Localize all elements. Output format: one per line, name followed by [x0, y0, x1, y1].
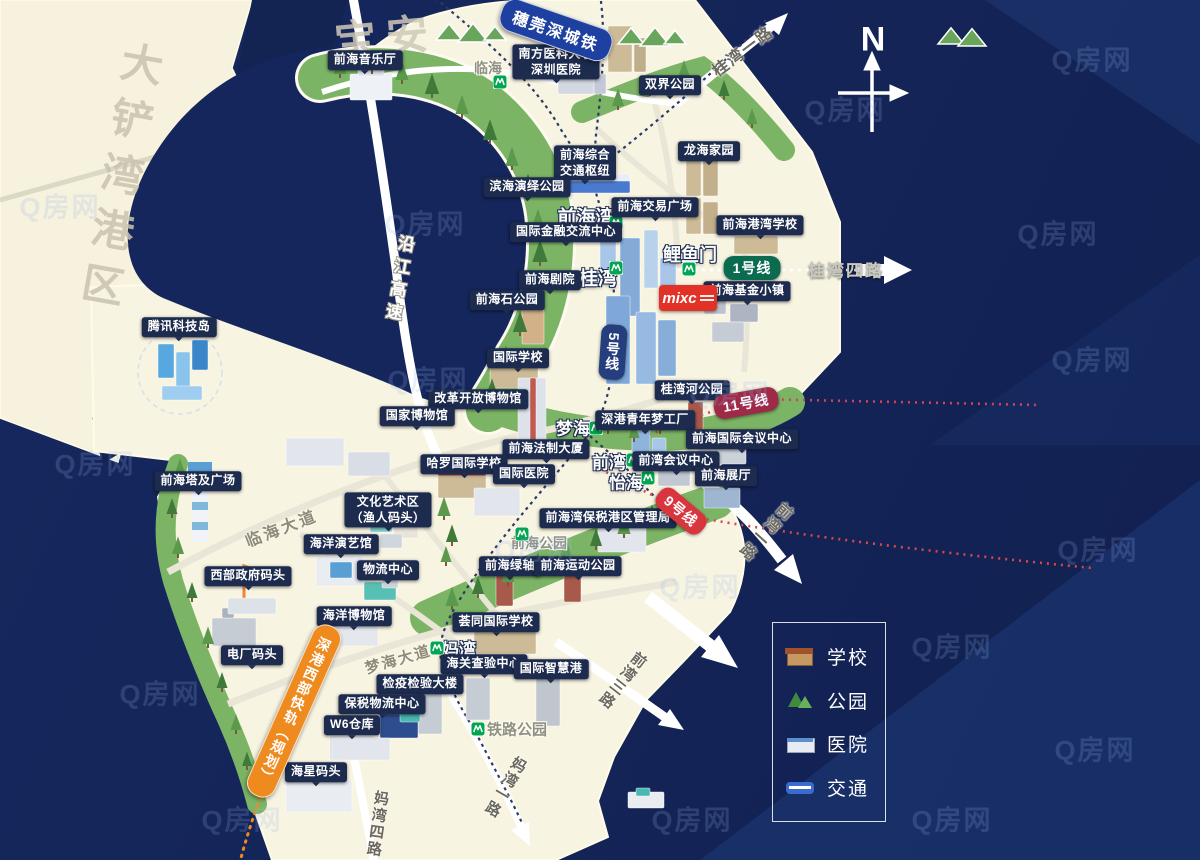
legend-park: 公园 [773, 687, 885, 714]
poi-w6-warehouse[interactable]: W6仓库 [324, 715, 380, 735]
poi-qianhai-exchange-plaza[interactable]: 前海交易广场 [611, 197, 698, 217]
site-watermark: Q房网 [1017, 213, 1098, 252]
site-watermark: Q房网 [384, 203, 465, 242]
metro-station-icon [515, 527, 529, 541]
poi-qianhai-gangwan-school[interactable]: 前海港湾学校 [716, 215, 803, 235]
site-watermark: Q房网 [911, 799, 992, 838]
poi-tencent-tech-island[interactable]: 腾讯科技岛 [142, 317, 217, 337]
road-guiwan-1: 桂湾一路 [706, 19, 778, 82]
poi-intl-smart-port[interactable]: 国际智慧港 [514, 659, 589, 679]
station-label: 铁路公园 [487, 719, 547, 740]
poi-qianhai-exhibition-hall[interactable]: 前海展厅 [695, 466, 757, 486]
poi-qianhai-concert-hall[interactable]: 前海音乐厅 [328, 50, 403, 70]
poi-qianhai-tower-plaza[interactable]: 前海塔及广场 [154, 471, 241, 491]
metro-line-5-badge[interactable]: 5号线 [598, 324, 628, 380]
hospital-icon [785, 732, 815, 756]
metro-station-icon [430, 641, 444, 655]
site-watermark: Q房网 [651, 799, 732, 838]
station-label: 梦海 [556, 415, 590, 440]
poi-qianhai-law-tower[interactable]: 前海法制大厦 [502, 439, 589, 459]
mixc-project-badge[interactable]: mixc [659, 285, 717, 311]
poi-ocean-museum[interactable]: 海洋博物馆 [317, 606, 392, 626]
poi-whittle-school[interactable]: 荟同国际学校 [452, 612, 539, 632]
map-legend: 学校 公园 医院 交通 [772, 622, 886, 822]
station-label: 怡海 [609, 469, 643, 494]
poi-quarantine-building[interactable]: 检疫检验大楼 [376, 674, 463, 694]
poi-longhai-homeland[interactable]: 龙海家园 [678, 141, 740, 161]
metro-station-icon [493, 75, 507, 89]
site-watermark: Q房网 [119, 673, 200, 712]
poi-qianhai-intl-convention-center[interactable]: 前海国际会议中心 [686, 429, 798, 449]
poi-szhk-youth-dream-factory[interactable]: 深港青年梦工厂 [595, 410, 695, 430]
road-qianwan-1: 前湾一路 [731, 495, 797, 565]
site-watermark: Q房网 [1057, 529, 1138, 568]
poi-haixing-wharf[interactable]: 海星码头 [285, 762, 347, 782]
site-watermark: Q房网 [1054, 729, 1135, 768]
site-watermark: Q房网 [911, 626, 992, 665]
metro-station-icon [471, 722, 485, 736]
poi-qianhai-stone-park[interactable]: 前海石公园 [470, 290, 545, 310]
legend-transit: 交通 [773, 774, 885, 801]
poi-west-government-wharf[interactable]: 西部政府码头 [204, 566, 291, 586]
compass-north-label: N [861, 21, 886, 60]
road-yanjiang-expressway: 沿江高速 [378, 233, 419, 328]
poi-qianhai-theater[interactable]: 前海剧院 [519, 270, 581, 290]
qianhai-area-map: 大铲湾港区 宝安 穗莞深城铁 深港西部快轨（规划） mixc N 学校 公园 医… [0, 0, 1200, 860]
poi-qianhai-sports-park[interactable]: 前海运动公园 [534, 556, 621, 576]
metro-station-icon [682, 262, 696, 276]
poi-binhai-performance-park[interactable]: 滨海演绎公园 [483, 177, 570, 197]
legend-school: 学校 [773, 643, 885, 670]
poi-bonded-port-admin[interactable]: 前海湾保税港区管理局 [539, 508, 676, 528]
road-guiwan-4: 桂湾四路 [808, 257, 884, 282]
site-watermark: Q房网 [1051, 39, 1132, 78]
road-mawan-1: 妈湾一路 [479, 752, 531, 821]
transit-icon [785, 775, 815, 799]
mixc-tagline-lines [700, 295, 714, 301]
poi-bonded-logistics-center[interactable]: 保税物流中心 [338, 694, 425, 714]
mixc-logo: mixc [662, 291, 696, 306]
site-watermark: Q房网 [1051, 339, 1132, 378]
park-icon [785, 688, 815, 712]
poi-logistics-center[interactable]: 物流中心 [357, 560, 419, 580]
poi-national-museum[interactable]: 国家博物馆 [380, 406, 455, 426]
school-icon [785, 645, 815, 669]
poi-international-hospital[interactable]: 国际医院 [493, 464, 555, 484]
poi-international-school[interactable]: 国际学校 [487, 348, 549, 368]
poi-qianhai-transport-hub[interactable]: 前海综合 交通枢纽 [554, 145, 616, 180]
road-mawan-4: 妈湾四路 [362, 789, 392, 859]
road-qianwan-3: 前湾三路 [593, 647, 651, 714]
poi-shuangjie-park[interactable]: 双界公园 [639, 75, 701, 95]
site-watermark: Q房网 [659, 566, 740, 605]
metro-line-1-badge[interactable]: 1号线 [724, 256, 781, 280]
ghost-label-dachanwan-port: 大铲湾港区 [64, 37, 173, 323]
site-watermark: Q房网 [54, 443, 135, 482]
road-menghai-avenue: 梦海大道 [362, 640, 433, 679]
poi-ocean-performance-hall[interactable]: 海洋演艺馆 [304, 534, 379, 554]
poi-intl-finance-exchange-center[interactable]: 国际金融交流中心 [510, 222, 622, 242]
poi-qianhai-green-axis[interactable]: 前海绿轴 [479, 556, 541, 576]
poi-culture-art-district[interactable]: 文化艺术区 （渔人码头） [344, 492, 431, 527]
site-watermark: Q房网 [19, 186, 100, 225]
metro-station-icon [641, 471, 655, 485]
site-watermark: Q房网 [201, 799, 282, 838]
poi-power-plant-wharf[interactable]: 电厂码头 [221, 645, 283, 665]
legend-hospital: 医院 [773, 730, 885, 757]
site-watermark: Q房网 [804, 89, 885, 128]
metro-station-icon [609, 261, 623, 275]
